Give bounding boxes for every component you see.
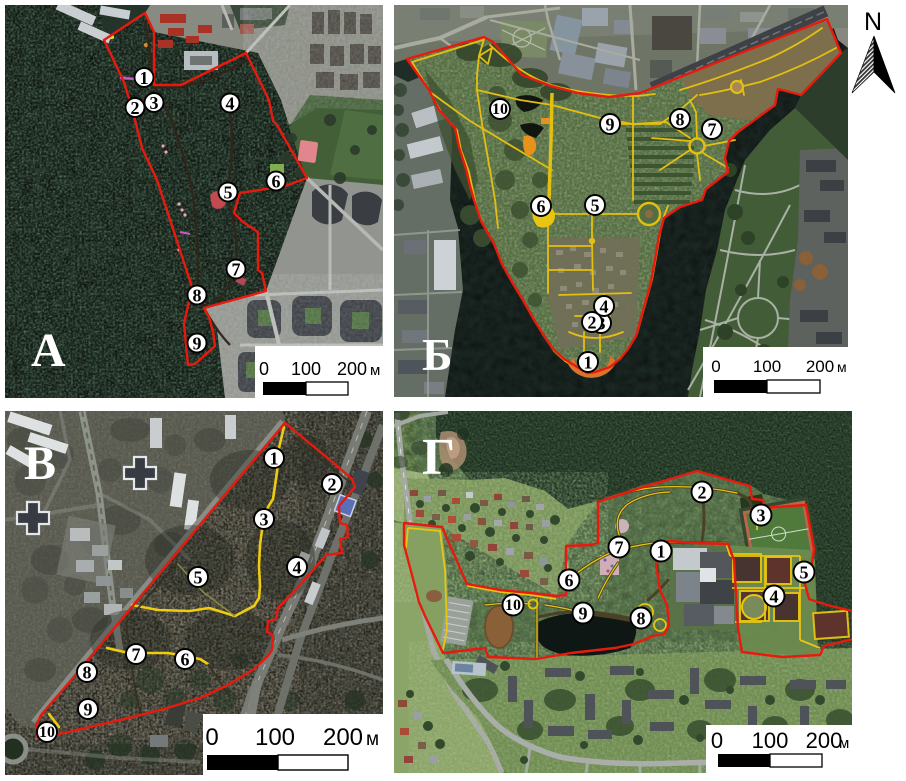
svg-text:9: 9: [579, 604, 588, 624]
svg-text:4: 4: [293, 558, 302, 578]
svg-text:10: 10: [505, 597, 521, 614]
svg-text:2: 2: [328, 475, 337, 495]
svg-text:7: 7: [708, 120, 717, 140]
svg-text:м: м: [837, 359, 847, 375]
svg-text:м: м: [370, 362, 380, 379]
svg-text:8: 8: [193, 286, 202, 306]
svg-text:100: 100: [255, 724, 295, 751]
svg-text:8: 8: [637, 609, 646, 629]
svg-text:2: 2: [698, 483, 707, 503]
svg-text:7: 7: [232, 260, 241, 280]
svg-text:А: А: [31, 324, 66, 377]
svg-text:5: 5: [800, 563, 809, 583]
svg-text:10: 10: [39, 724, 55, 741]
svg-text:5: 5: [194, 568, 203, 588]
svg-text:6: 6: [537, 197, 546, 217]
svg-text:1: 1: [657, 542, 666, 562]
svg-text:м: м: [839, 735, 849, 752]
svg-text:200: 200: [337, 359, 367, 379]
svg-text:200: 200: [806, 728, 843, 753]
svg-text:10: 10: [492, 101, 508, 118]
svg-text:1: 1: [584, 353, 593, 373]
svg-text:1: 1: [140, 68, 149, 88]
svg-text:3: 3: [757, 506, 766, 526]
svg-text:6: 6: [565, 571, 574, 591]
svg-text:4: 4: [770, 587, 779, 607]
svg-text:7: 7: [615, 538, 624, 558]
svg-text:200: 200: [806, 357, 834, 376]
svg-text:3: 3: [150, 93, 159, 113]
svg-text:1: 1: [270, 449, 279, 469]
svg-text:5: 5: [591, 196, 600, 216]
svg-text:7: 7: [132, 645, 141, 665]
svg-text:100: 100: [753, 357, 781, 376]
svg-text:6: 6: [272, 172, 281, 192]
svg-text:8: 8: [676, 110, 685, 130]
svg-text:4: 4: [600, 297, 609, 317]
svg-text:9: 9: [84, 700, 93, 720]
svg-text:м: м: [366, 729, 379, 750]
svg-text:0: 0: [259, 359, 269, 379]
svg-text:100: 100: [291, 359, 321, 379]
svg-text:4: 4: [226, 94, 235, 114]
svg-text:Г: Г: [422, 429, 455, 486]
svg-text:8: 8: [83, 663, 92, 683]
svg-text:100: 100: [752, 728, 789, 753]
svg-text:9: 9: [606, 115, 615, 135]
svg-text:3: 3: [260, 510, 269, 530]
svg-text:Б: Б: [422, 329, 452, 380]
svg-text:2: 2: [131, 98, 140, 118]
svg-text:2: 2: [588, 313, 597, 333]
svg-text:5: 5: [224, 183, 233, 203]
svg-text:9: 9: [193, 334, 202, 354]
svg-text:6: 6: [181, 650, 190, 670]
svg-text:200: 200: [323, 724, 363, 751]
svg-text:N: N: [864, 8, 882, 36]
svg-text:0: 0: [711, 357, 720, 376]
svg-text:В: В: [24, 437, 56, 490]
svg-text:0: 0: [205, 724, 218, 751]
svg-text:0: 0: [711, 728, 723, 753]
